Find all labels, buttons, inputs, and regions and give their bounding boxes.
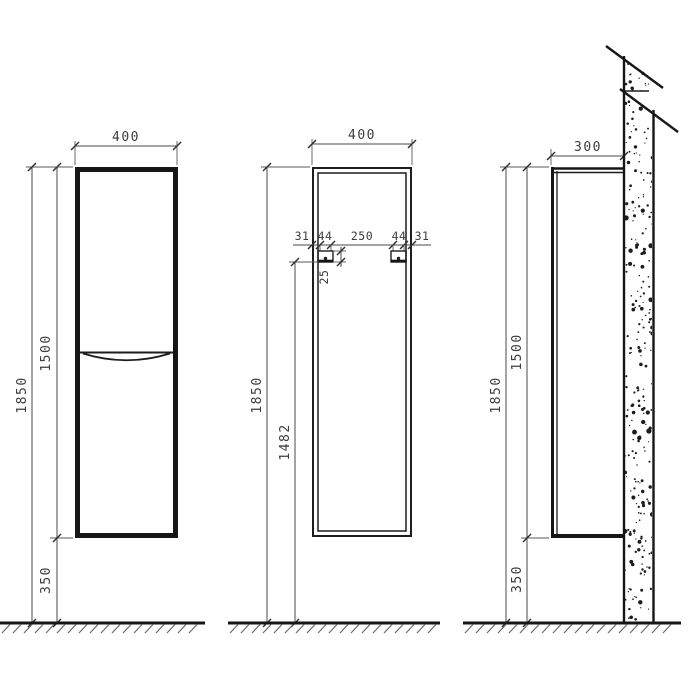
dim-label-edge-offset-right: 31 [415, 229, 430, 243]
mounting-bracket-left [318, 245, 333, 262]
break-line-lower [620, 89, 678, 132]
dim-label-front-width: 400 [112, 130, 140, 145]
dim-label-side-floor-gap: 350 [510, 565, 525, 593]
dim-label-front-body-height: 1500 [39, 334, 54, 371]
dim-label-side-total-height: 1850 [489, 376, 504, 413]
back-width-dimension: 400 [308, 128, 416, 165]
front-width-dimension: 400 [71, 130, 181, 165]
back-cabinet-inner-outline [318, 173, 406, 531]
back-cabinet-outer-outline [313, 168, 411, 536]
side-depth-dimension: 300 [547, 140, 628, 165]
dim-label-edge-offset-left: 31 [295, 229, 310, 243]
bracket-screw-hole [397, 257, 400, 260]
dim-label-bracket-spacing: 250 [351, 229, 373, 243]
cabinet-technical-drawing: 400 1850 1500 350 400 [0, 0, 700, 700]
break-line-upper [606, 46, 663, 88]
side-view: 300 1850 1500 350 [489, 46, 678, 627]
front-height-dimensions: 1850 1500 350 [15, 163, 73, 627]
bracket-height-dimension: 25 [317, 247, 346, 284]
side-height-dimensions: 1850 1500 350 [489, 163, 549, 627]
bracket-screw-hole [324, 257, 327, 260]
dim-label-back-mount-height: 1482 [278, 423, 293, 460]
dim-label-side-depth: 300 [574, 140, 602, 155]
mounting-bracket-right [391, 245, 406, 262]
dim-label-bracket-height: 25 [317, 270, 331, 285]
front-handle-recess-curve [83, 354, 170, 361]
dim-label-bracket-width-right: 44 [392, 229, 407, 243]
dim-label-front-floor-gap: 350 [39, 566, 54, 594]
dim-label-back-width: 400 [348, 128, 376, 143]
dim-label-side-body-height: 1500 [510, 333, 525, 370]
dim-label-bracket-width-left: 44 [318, 229, 333, 243]
technical-drawing-page: 400 1850 1500 350 400 [0, 0, 700, 700]
back-view: 400 31 44 250 44 31 [250, 128, 431, 627]
wall-speckle-texture [623, 54, 655, 620]
floor-hatching [2, 625, 671, 634]
dim-label-back-total-height: 1850 [250, 376, 265, 413]
dim-label-front-total-height: 1850 [15, 376, 30, 413]
front-view: 400 1850 1500 350 [15, 130, 181, 627]
floor-lines [0, 623, 681, 633]
